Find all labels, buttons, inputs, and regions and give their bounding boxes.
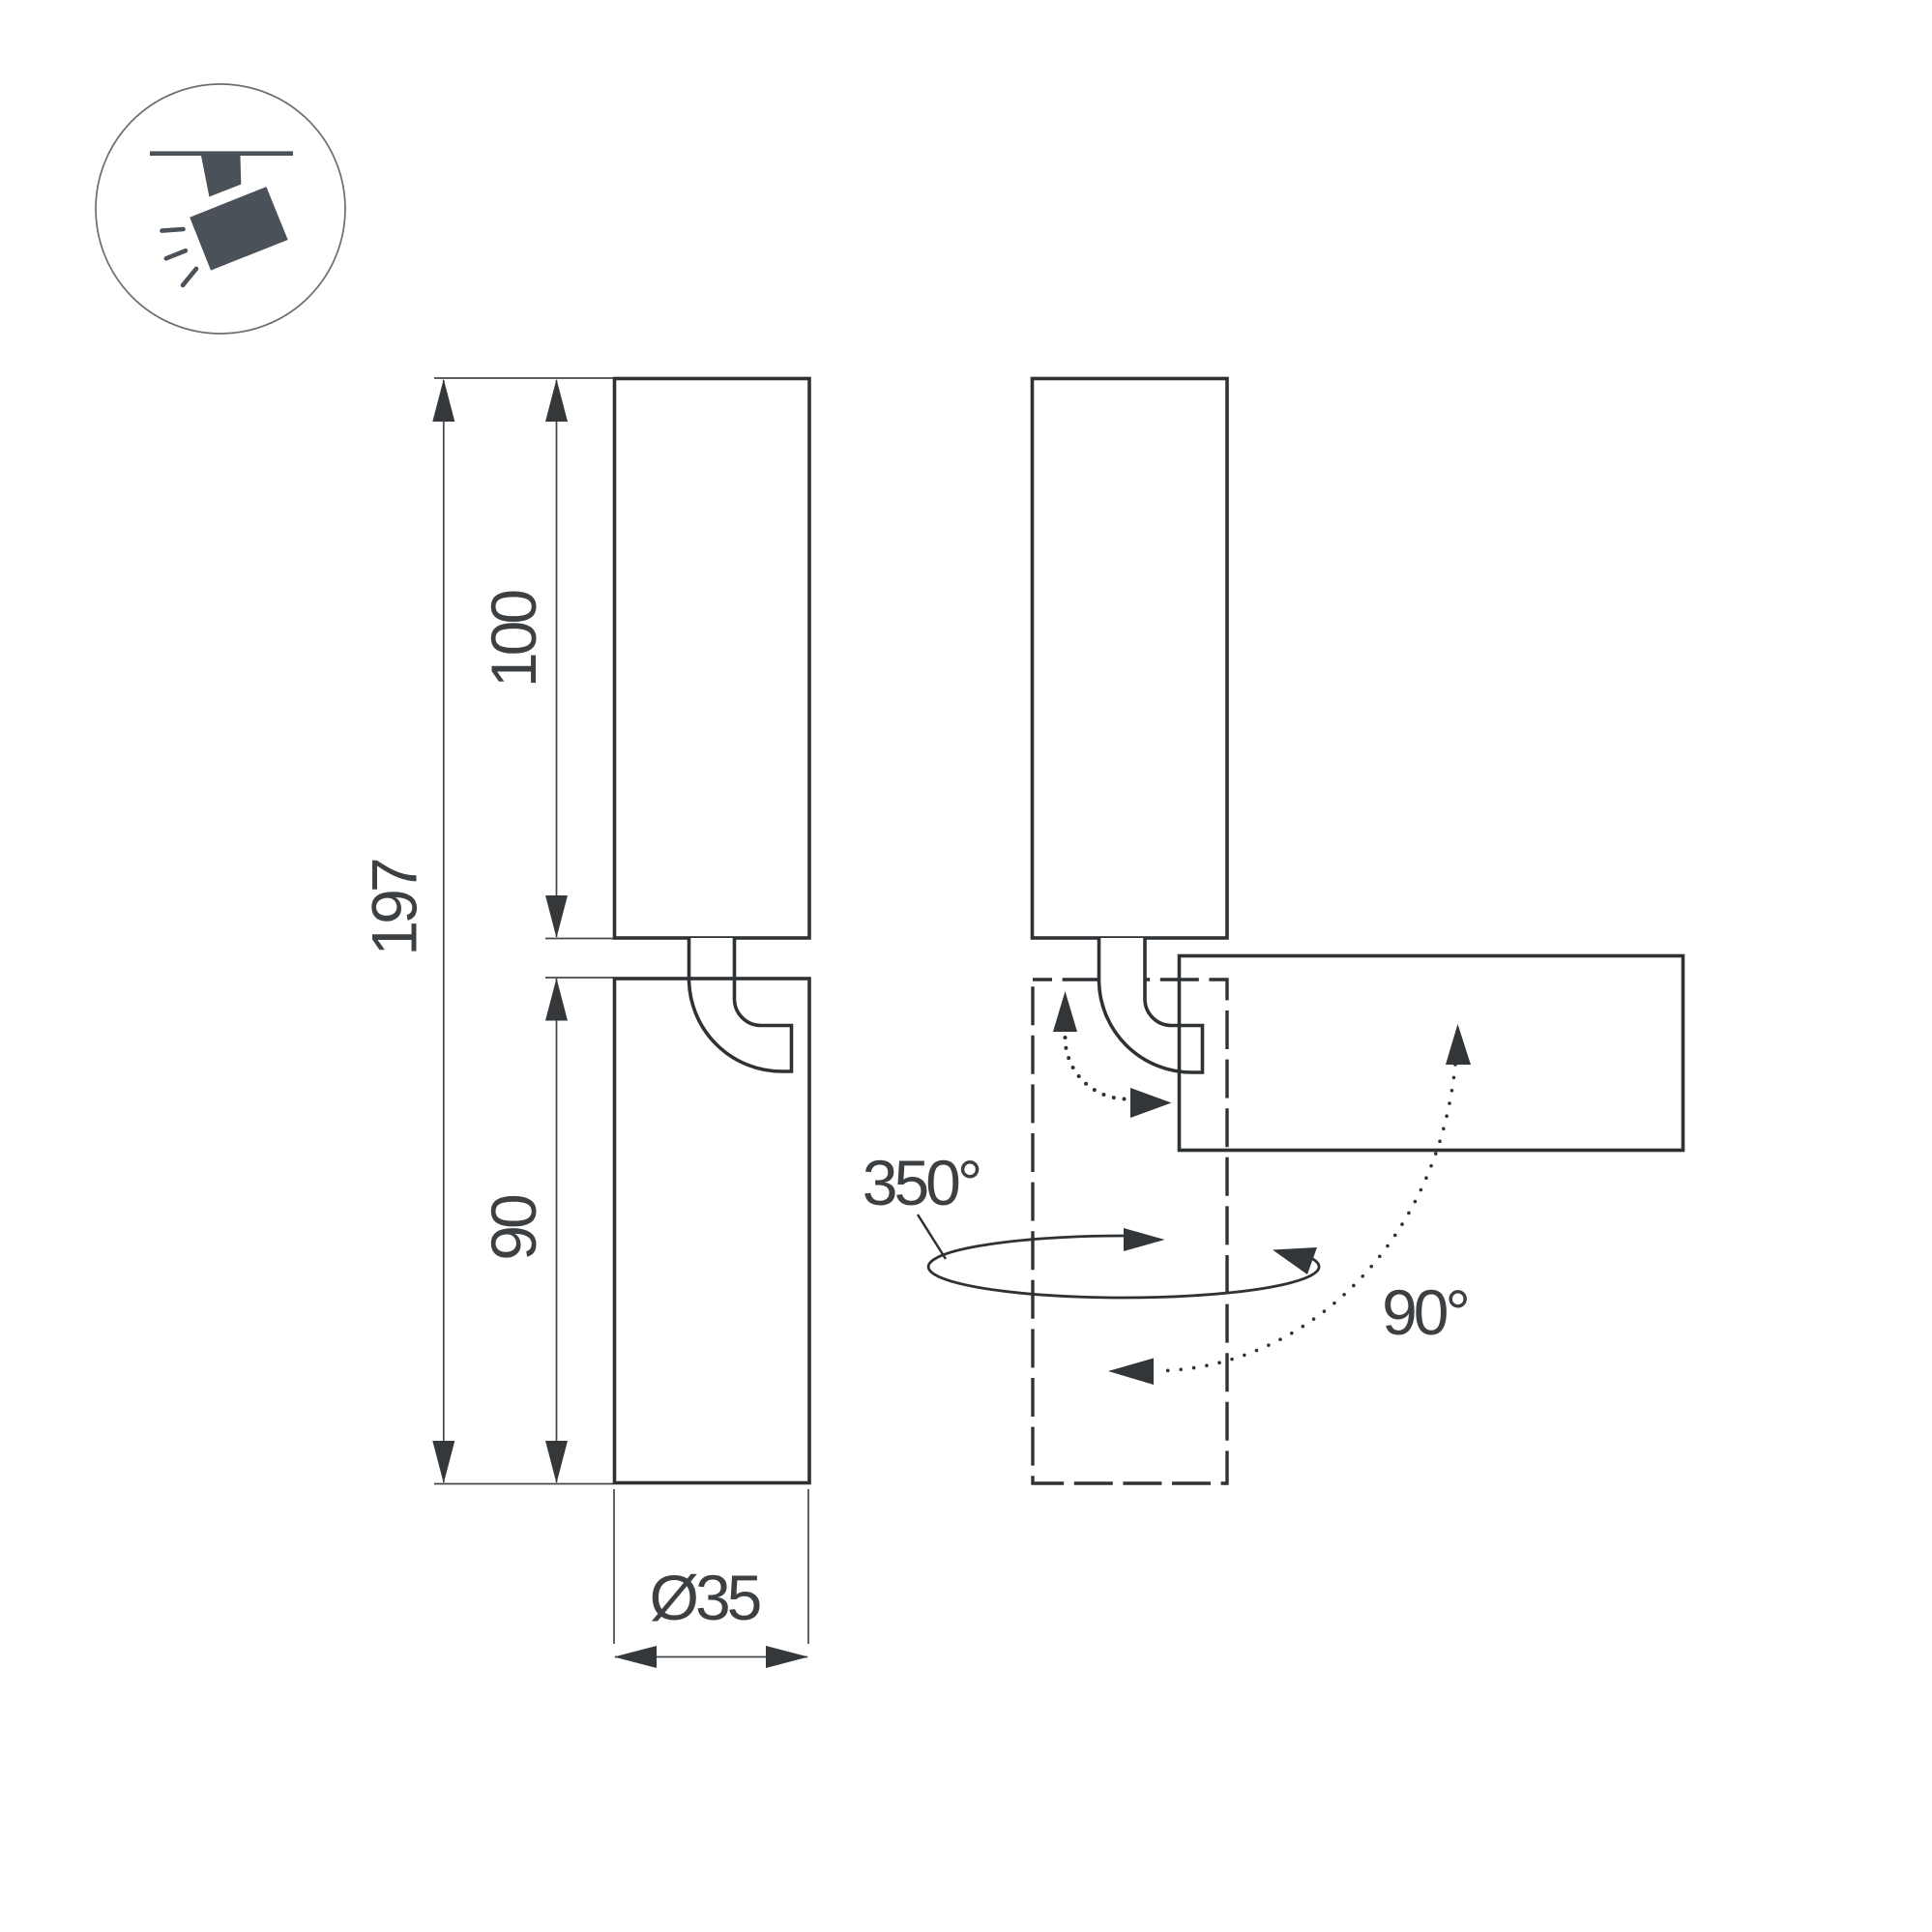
svg-text:Ø35: Ø35 — [650, 1562, 760, 1633]
svg-text:90°: 90° — [1382, 1276, 1467, 1348]
svg-text:350°: 350° — [863, 1147, 980, 1218]
svg-text:100: 100 — [478, 591, 549, 688]
svg-text:197: 197 — [359, 860, 430, 955]
svg-text:90: 90 — [478, 1195, 549, 1261]
